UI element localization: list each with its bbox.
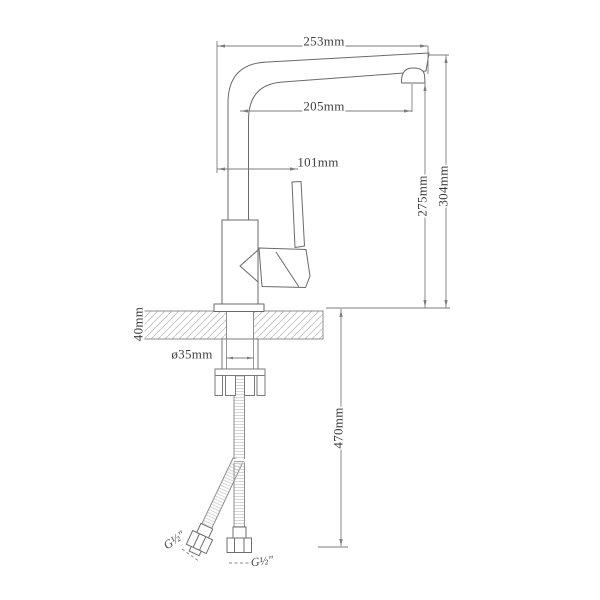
dim-hose-length-label: 470mm: [332, 406, 345, 449]
handle-base: [259, 248, 310, 288]
handle-lever: [292, 182, 305, 248]
mounting-hardware: [222, 339, 258, 369]
dimension-arrows: [142, 44, 448, 546]
dim-overall-height-label: 304mm: [437, 164, 450, 207]
aerator-outline: [401, 68, 425, 83]
dim-spout-width-label: 253mm: [302, 35, 345, 48]
dim-hole-diameter-label: ø35mm: [170, 348, 213, 361]
faucet-line-drawing: [0, 0, 600, 600]
thread-size-bottom-label: G½″: [250, 553, 274, 568]
dim-outlet-height-label: 275mm: [416, 174, 429, 217]
spout-outline: [228, 53, 429, 220]
base-plate: [214, 304, 264, 312]
countertop-section: [143, 311, 323, 339]
dim-deck-thickness-label: 40mm: [132, 306, 145, 342]
dim-handle-offset-label: 101mm: [296, 156, 339, 169]
mount-hole: [227, 312, 254, 339]
faucet-spec-diagram: 253mm 205mm 101mm 275mm 304mm 40mm ø35mm…: [0, 0, 600, 600]
threaded-shank: [222, 339, 258, 369]
supply-hoses: [201, 375, 246, 530]
hose-vertical: [234, 375, 245, 527]
hose-fitting-vertical: [227, 527, 252, 553]
dim-spout-reach-label: 205mm: [302, 100, 345, 113]
faucet-outline: [214, 53, 429, 312]
valve-body: [222, 220, 258, 304]
